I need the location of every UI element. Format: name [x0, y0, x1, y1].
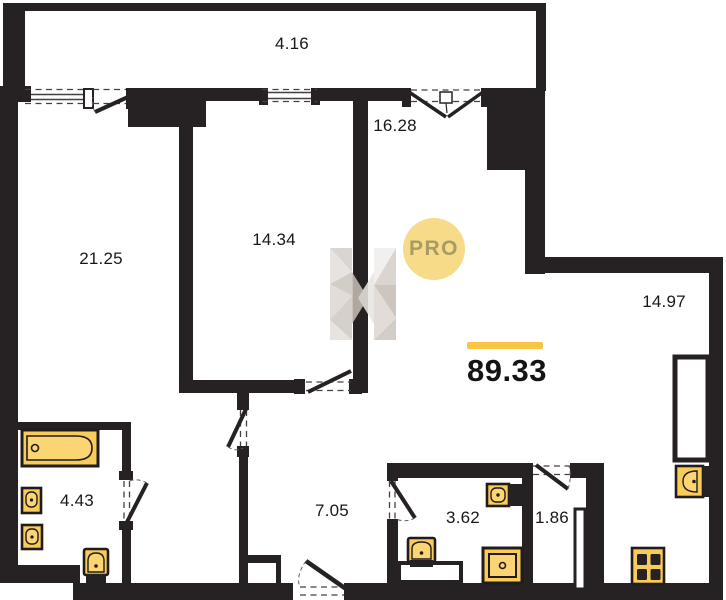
- balcony-left-wall: [3, 3, 25, 90]
- window-post: [84, 89, 93, 108]
- total-area-accent-bar: [467, 342, 543, 349]
- window-living-room: [25, 90, 90, 104]
- wc-left-wall: [387, 519, 398, 600]
- room-area-label-storage: 1.86: [535, 508, 569, 528]
- window-plate: [259, 88, 268, 105]
- room-area-label-kitchen: 14.97: [642, 292, 686, 312]
- bedroom-left-wall: [179, 101, 193, 393]
- room-area-label-bedroom: 14.34: [252, 230, 296, 250]
- bathtub-icon: [22, 430, 98, 466]
- entry-niche-top: [242, 555, 281, 563]
- door-hinge-block: [119, 521, 133, 530]
- balcony-door-double: [409, 90, 483, 117]
- storage-top-wall: [570, 463, 604, 478]
- floor-plan-drawing: [0, 0, 726, 600]
- total-area-value: 89.33: [467, 353, 547, 389]
- entry-niche-side: [276, 563, 281, 583]
- storage-door: [533, 465, 570, 489]
- bedroom-door: [306, 371, 351, 392]
- right-wall: [709, 263, 723, 600]
- washing-machine-icon: [483, 548, 522, 583]
- storage-duct: [575, 509, 585, 589]
- wc-left-wall-stub: [387, 463, 398, 481]
- window-bedroom: [262, 90, 317, 102]
- stove-icon: [632, 548, 664, 584]
- room-area-label-bathroom: 4.43: [60, 491, 94, 511]
- top-wall-block: [128, 88, 206, 127]
- left-wall: [0, 86, 18, 583]
- wc-storage-divider-wall: [522, 478, 533, 600]
- bedroom-bottom-wall: [179, 380, 304, 393]
- balcony-top-wall: [3, 3, 546, 11]
- corridor-door: [228, 409, 247, 450]
- room-area-label-hallway: 7.05: [315, 501, 349, 521]
- balcony-right-wall: [536, 3, 546, 91]
- entrance-door: [299, 561, 349, 595]
- room-area-label-balcony: 4.16: [275, 34, 309, 54]
- top-right-wall-block: [487, 88, 545, 170]
- door-hinge-block: [119, 471, 133, 480]
- balcony-door-living: [92, 90, 128, 113]
- door-hinge-block: [237, 446, 249, 457]
- corridor-wall: [239, 457, 248, 583]
- bathroom-bottom-wall: [0, 565, 80, 583]
- middle-wall: [353, 101, 368, 393]
- sink-icon: [22, 488, 41, 513]
- bathroom-right-wall-lower: [122, 530, 131, 583]
- pro-badge: PRO: [403, 218, 465, 280]
- sink-icon: [487, 484, 522, 506]
- toilet-icon: [84, 549, 108, 583]
- bottom-wall-right: [344, 583, 723, 600]
- wc-door: [390, 481, 416, 521]
- room-area-label-living: 21.25: [79, 249, 123, 269]
- kitchen-sink-icon: [676, 466, 710, 497]
- top-wall: [318, 88, 410, 101]
- toilet-icon: [408, 538, 435, 567]
- bottom-wall-left: [73, 583, 293, 600]
- floor-plan: 4.16 21.25 14.34 16.28 14.97 4.43 7.05 3…: [0, 0, 726, 600]
- room-area-label-room16: 16.28: [373, 116, 417, 136]
- door-post: [402, 88, 411, 107]
- bathroom-door: [124, 480, 147, 522]
- storage-right-wall: [586, 478, 604, 600]
- wc-top-wall: [387, 463, 533, 478]
- door-hinge-block: [294, 379, 305, 394]
- window-plate: [24, 90, 31, 101]
- kitchen-duct: [675, 357, 708, 460]
- door-hinge-block: [237, 393, 249, 410]
- sink-icon: [22, 525, 42, 549]
- room-area-label-wc: 3.62: [446, 508, 480, 528]
- kitchen-top-wall: [525, 257, 723, 273]
- top-wall: [200, 88, 267, 101]
